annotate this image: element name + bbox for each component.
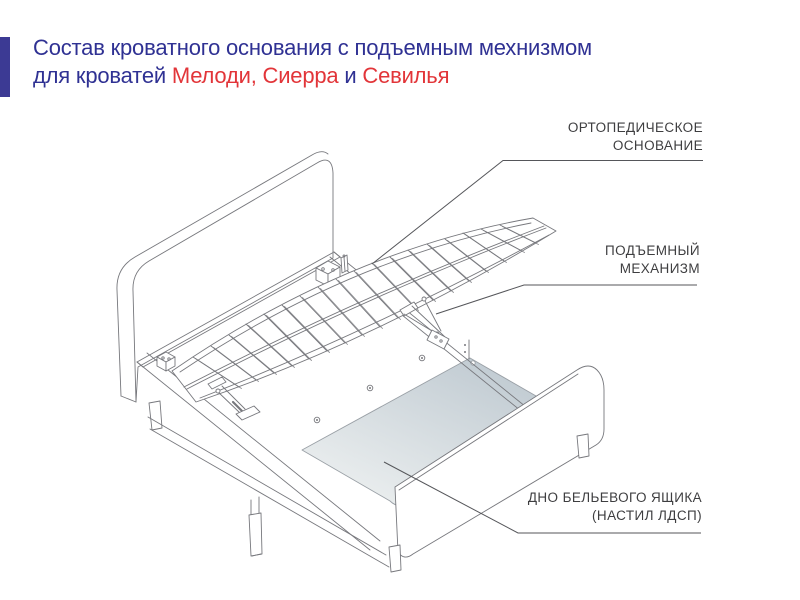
leader-lift-mechanism (436, 285, 697, 314)
callout-drawer-bottom: ДНО БЕЛЬЕВОГО ЯЩИКА (НАСТИЛ ЛДСП) (528, 489, 702, 524)
callout-lift-mechanism: ПОДЪЕМНЫЙ МЕХАНИЗМ (605, 242, 700, 277)
callout-orthopedic-base-line2: ОСНОВАНИЕ (568, 137, 703, 155)
headboard-leg (149, 401, 162, 430)
footboard-leg-left (389, 545, 401, 572)
callout-orthopedic-base-line1: ОРТОПЕДИЧЕСКОЕ (568, 119, 703, 137)
callout-lift-mechanism-line2: МЕХАНИЗМ (605, 260, 700, 278)
callout-drawer-bottom-line1: ДНО БЕЛЬЕВОГО ЯЩИКА (528, 489, 702, 507)
callout-lift-mechanism-line1: ПОДЪЕМНЫЙ (605, 242, 700, 260)
center-leg (249, 497, 262, 556)
callout-drawer-bottom-line2: (НАСТИЛ ЛДСП) (528, 507, 702, 525)
callout-orthopedic-base: ОРТОПЕДИЧЕСКОЕ ОСНОВАНИЕ (568, 119, 703, 154)
footboard-leg-right (577, 434, 589, 458)
